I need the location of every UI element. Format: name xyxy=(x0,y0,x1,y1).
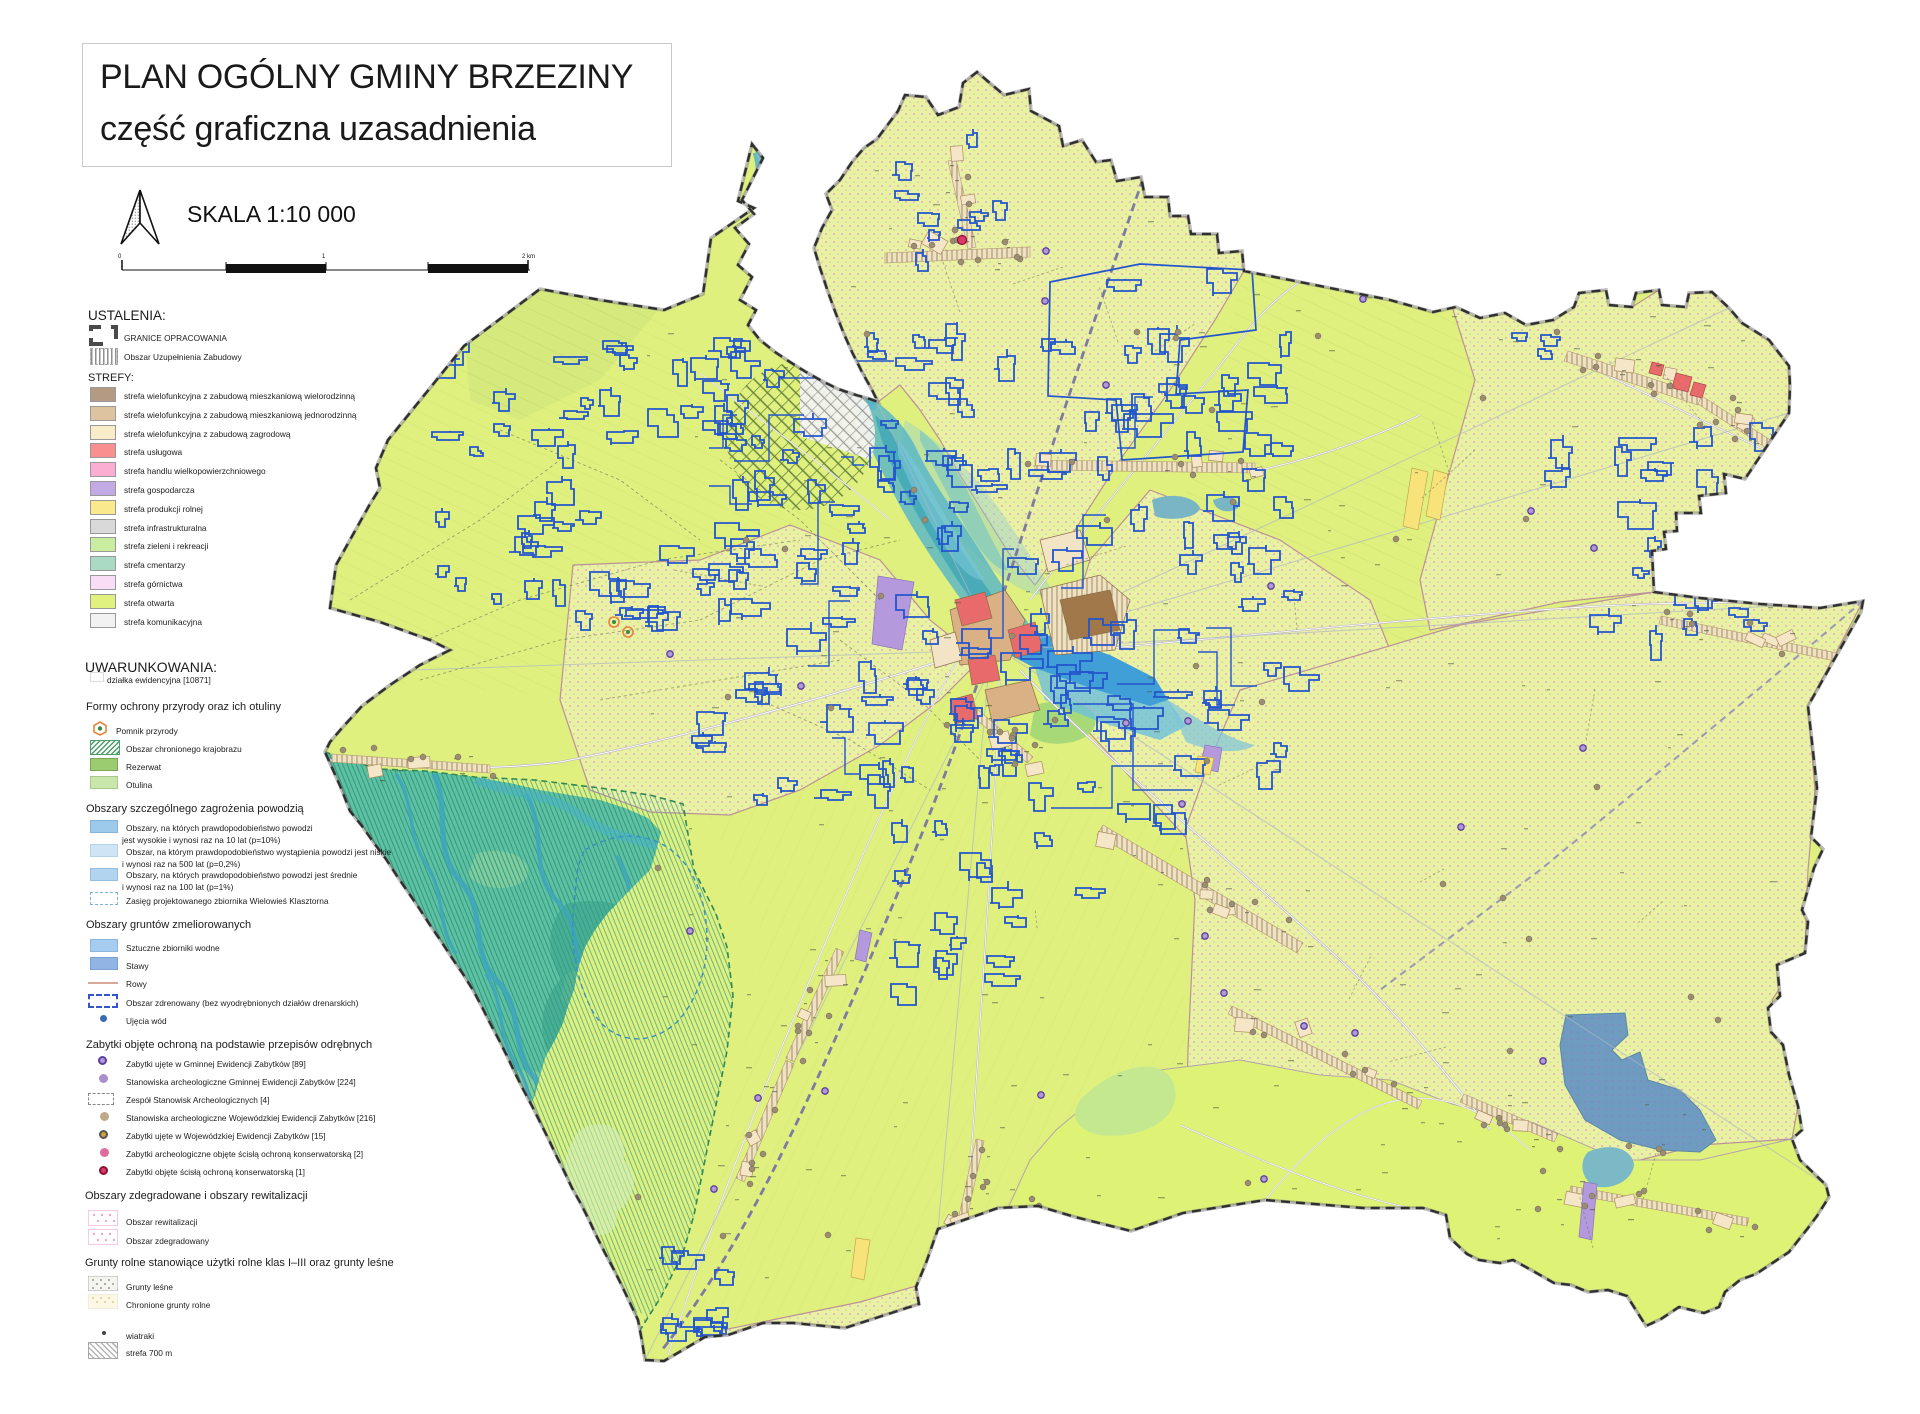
svg-text:2 km: 2 km xyxy=(522,254,535,260)
svg-text:1: 1 xyxy=(322,254,326,260)
svg-text:0: 0 xyxy=(118,254,122,260)
